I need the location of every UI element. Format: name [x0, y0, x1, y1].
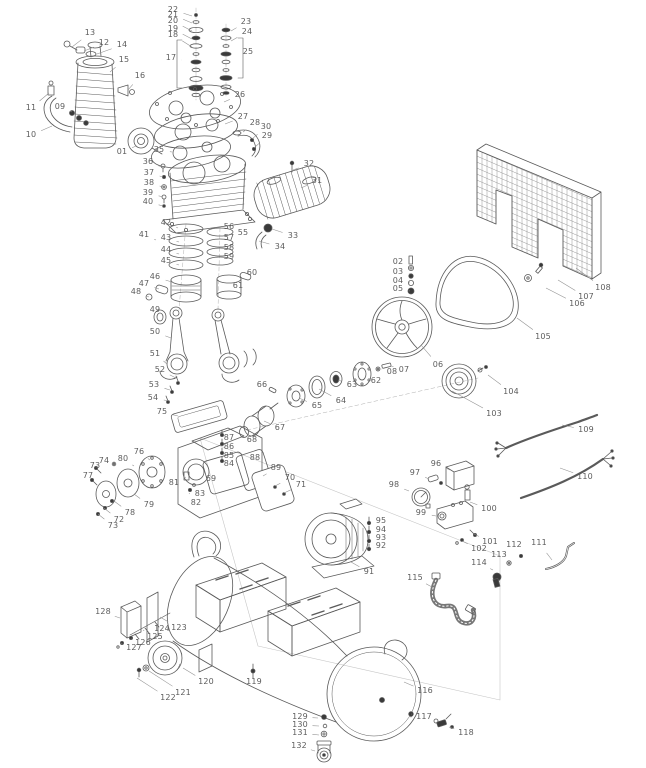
leader-line	[84, 47, 94, 51]
leader-line	[148, 459, 150, 461]
leader-line	[165, 336, 171, 338]
leader-line	[104, 508, 110, 513]
leader-line	[173, 415, 178, 416]
leader-line	[338, 380, 342, 381]
leader-lines-layer	[0, 0, 646, 768]
leader-line	[299, 398, 307, 402]
leader-line	[488, 375, 501, 385]
leader-line	[132, 146, 136, 148]
leader-line	[425, 477, 429, 479]
leader-line	[462, 541, 468, 544]
leader-line	[160, 617, 168, 622]
leader-line	[391, 366, 394, 367]
leader-line	[146, 296, 149, 297]
leader-line	[176, 227, 178, 228]
leader-line	[558, 280, 575, 291]
leader-line	[164, 361, 168, 364]
leader-line	[160, 186, 163, 187]
leader-line	[170, 375, 176, 378]
leader-line	[41, 126, 52, 131]
leader-line	[154, 239, 156, 240]
leader-line	[40, 93, 50, 101]
leader-line	[183, 26, 192, 31]
leader-line	[449, 727, 454, 729]
leader-line	[182, 41, 192, 47]
leader-line	[132, 465, 134, 466]
leader-line	[183, 34, 192, 39]
leader-line	[128, 84, 133, 90]
leader-line	[154, 288, 159, 290]
leader-line	[474, 534, 479, 536]
leader-line	[311, 750, 315, 751]
leader-line	[160, 176, 163, 177]
leader-line	[224, 99, 230, 102]
leader-line	[426, 584, 432, 587]
leader-line	[177, 241, 180, 242]
leader-line	[560, 468, 573, 473]
leader-line	[159, 205, 163, 206]
leader-line	[177, 264, 180, 265]
leader-line	[452, 391, 483, 408]
leader-line	[547, 553, 552, 560]
leader-line	[98, 514, 104, 519]
leader-line	[149, 671, 173, 686]
leader-line	[432, 515, 436, 516]
leader-line	[164, 400, 169, 401]
leader-line	[263, 474, 267, 476]
leader-line	[183, 19, 192, 23]
parts-diagram: 1312141516110910012221201918172324252627…	[0, 0, 646, 768]
leader-line	[231, 37, 237, 41]
leader-line	[70, 111, 72, 112]
leader-line	[184, 13, 193, 16]
leader-line	[177, 253, 180, 254]
leader-line	[134, 494, 140, 499]
leader-line	[301, 185, 307, 188]
leader-line	[115, 616, 120, 618]
leader-line	[252, 134, 258, 139]
leader-line	[272, 229, 283, 233]
leader-line	[225, 121, 233, 124]
leader-line	[165, 388, 171, 390]
leader-line	[259, 241, 269, 244]
leader-line	[231, 28, 237, 31]
leader-line	[121, 643, 122, 644]
leader-line	[490, 569, 493, 570]
leader-line	[243, 130, 246, 132]
leader-line	[114, 501, 121, 506]
leader-line	[562, 425, 574, 428]
leader-line	[159, 196, 163, 197]
leader-line	[184, 477, 186, 478]
leader-line	[517, 318, 533, 330]
leader-line	[97, 49, 112, 54]
leader-line	[72, 40, 81, 47]
leader-line	[319, 389, 331, 396]
leader-line	[576, 268, 593, 281]
leader-line	[158, 166, 162, 167]
leader-line	[293, 168, 299, 170]
leader-line	[404, 489, 409, 491]
leader-line	[312, 734, 319, 735]
leader-line	[351, 562, 359, 567]
leader-line	[404, 682, 414, 686]
leader-line	[166, 280, 172, 282]
leader-line	[183, 668, 195, 676]
leader-line	[284, 490, 291, 493]
leader-line	[264, 421, 270, 424]
leader-line	[254, 144, 259, 149]
leader-line	[137, 678, 158, 691]
leader-line	[275, 483, 280, 486]
leader-line	[189, 493, 190, 494]
leader-line	[143, 630, 144, 631]
leader-line	[421, 345, 431, 357]
leader-line	[546, 288, 566, 298]
leader-line	[470, 502, 477, 505]
leader-line	[446, 468, 450, 470]
leader-line	[110, 67, 116, 72]
